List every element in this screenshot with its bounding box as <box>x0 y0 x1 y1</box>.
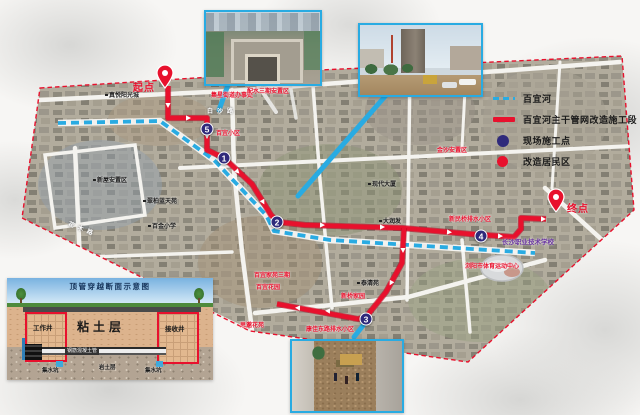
project-map-figure: 集星街道办事处配水三期安置区百宜小区金沙安置区新民桥排水小区百宜家苑三期百宜花园… <box>0 0 640 415</box>
end-label: 终点 <box>567 200 589 215</box>
construction-point-3: 3 <box>360 313 373 326</box>
rock-layer-label: 岩土层 <box>99 363 116 371</box>
construction-point-4: 4 <box>475 230 488 243</box>
legend-item-construction-segment: 百宜河主干管网改造施工段 <box>493 113 637 126</box>
cross-section-title: 顶管穿越断面示意图 <box>7 281 213 292</box>
legend-label: 改造居民区 <box>523 155 571 168</box>
working-shaft-label: 工作井 <box>33 322 53 332</box>
legend-item-renovated-area: 改造居民区 <box>493 155 637 168</box>
legend-label: 百宜河 <box>523 92 552 105</box>
construction-point-5: 5 <box>201 123 214 136</box>
guide-rail <box>22 338 25 360</box>
pipe-label: 钢筋混凝土管 <box>65 348 99 355</box>
receiving-shaft <box>157 312 199 364</box>
construction-point-2: 2 <box>271 216 284 229</box>
red-dot-swatch <box>497 156 508 167</box>
solid-line-swatch <box>493 117 515 122</box>
legend-label: 百宜河主干管网改造施工段 <box>523 113 637 126</box>
legend-item-site-point: 现场施工点 <box>493 134 637 147</box>
photo-trench-excavation <box>290 339 404 413</box>
clay-layer-label: 粘土层 <box>77 318 125 335</box>
pipe-jacking-machine <box>24 344 42 360</box>
legend-item-river: 百宜河 <box>493 92 637 105</box>
photo-working-shaft-pit <box>204 10 322 86</box>
legend-label: 现场施工点 <box>523 134 571 147</box>
stadium <box>481 255 523 281</box>
sump-right-label: 集水坑 <box>145 366 162 374</box>
photo-street-construction <box>358 23 483 97</box>
pipe-jacking-cross-section: 顶管穿越断面示意图 粘土层 工作井 接收井 钢筋混凝土管 集水坑 岩土层 集水坑 <box>7 278 213 380</box>
receiving-shaft-label: 接收井 <box>165 323 185 333</box>
dashed-line-swatch <box>493 97 515 101</box>
start-label: 起点 <box>133 79 155 94</box>
purple-dot-swatch <box>497 135 509 147</box>
sump-left-label: 集水坑 <box>42 366 59 374</box>
construction-point-1: 1 <box>218 152 231 165</box>
legend: 百宜河 百宜河主干管网改造施工段 现场施工点 改造居民区 <box>493 92 637 176</box>
